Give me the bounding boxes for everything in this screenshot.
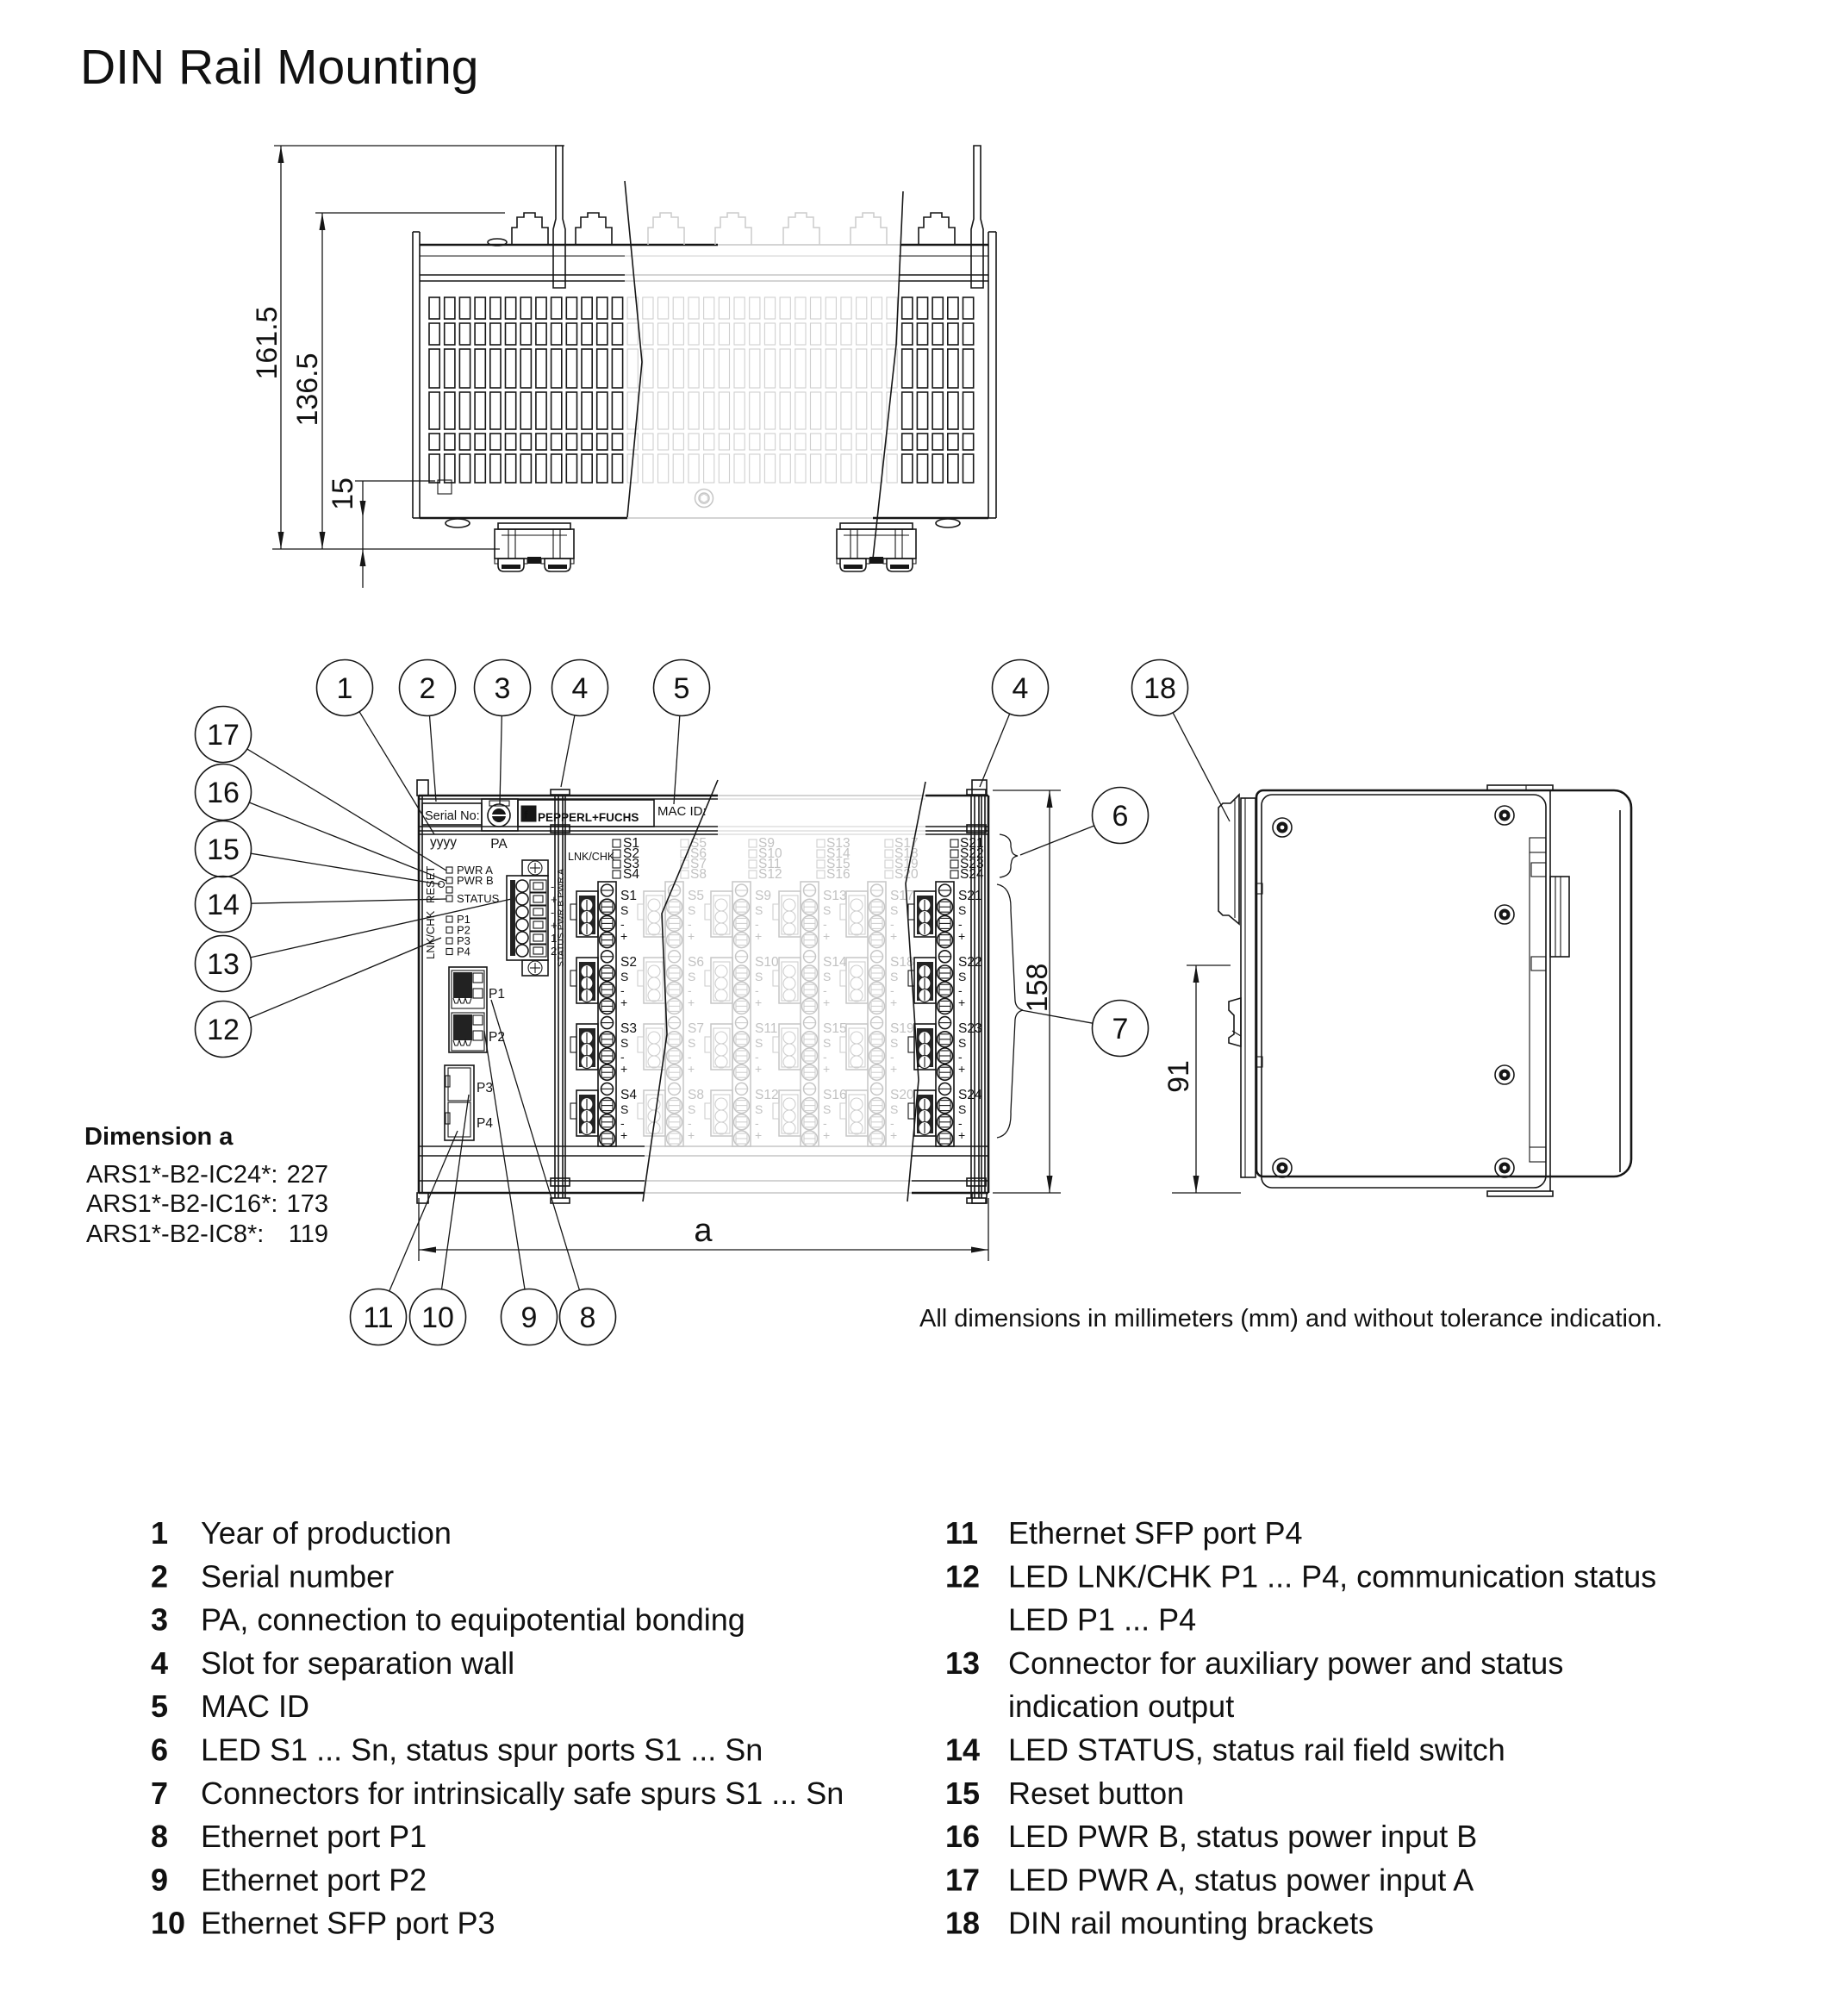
svg-text:S6: S6	[688, 955, 704, 970]
svg-text:+: +	[620, 1062, 627, 1076]
svg-text:Connector for auxiliary power: Connector for auxiliary power and status	[1008, 1645, 1563, 1681]
svg-text:S: S	[688, 1102, 695, 1116]
svg-text:a: a	[694, 1213, 713, 1249]
svg-text:S5: S5	[688, 889, 704, 903]
svg-text:15: 15	[207, 833, 240, 866]
svg-text:S: S	[823, 1036, 831, 1050]
svg-text:RESET: RESET	[424, 866, 437, 903]
svg-text:10: 10	[421, 1301, 454, 1334]
svg-text:S: S	[890, 970, 898, 983]
svg-text:4: 4	[572, 672, 589, 705]
svg-text:All dimensions in millimeters: All dimensions in millimeters (mm) and w…	[919, 1305, 1662, 1333]
svg-text:ARS1*-B2-IC16*:: ARS1*-B2-IC16*:	[86, 1190, 277, 1218]
svg-text:+: +	[958, 1062, 965, 1076]
svg-text:+: +	[890, 1062, 897, 1076]
svg-text:S: S	[620, 1036, 628, 1050]
svg-text:LNK/CHK: LNK/CHK	[424, 910, 437, 959]
svg-text:-: -	[551, 906, 554, 919]
svg-text:S: S	[620, 1102, 628, 1116]
svg-text:S: S	[755, 903, 763, 917]
svg-text:S3: S3	[620, 1021, 637, 1036]
svg-text:+: +	[688, 929, 695, 943]
svg-text:119: 119	[289, 1220, 328, 1248]
svg-text:9: 9	[151, 1862, 168, 1897]
svg-text:S21: S21	[958, 889, 982, 903]
svg-text:Serial No:: Serial No:	[425, 809, 480, 823]
svg-text:P1: P1	[489, 987, 505, 1002]
svg-text:Ethernet SFP port P4: Ethernet SFP port P4	[1008, 1515, 1303, 1551]
svg-text:S: S	[958, 970, 966, 983]
svg-text:S8: S8	[688, 1088, 704, 1102]
svg-text:P3: P3	[477, 1081, 493, 1095]
svg-text:S14: S14	[823, 955, 847, 970]
svg-text:+: +	[688, 1128, 695, 1142]
svg-text:18: 18	[1143, 672, 1176, 705]
svg-text:17: 17	[945, 1862, 980, 1897]
svg-text:S: S	[688, 903, 695, 917]
svg-text:LED S1 ... Sn, status spur por: LED S1 ... Sn, status spur ports S1 ... …	[201, 1732, 763, 1768]
svg-text:+: +	[688, 1062, 695, 1076]
svg-text:1: 1	[337, 672, 353, 705]
svg-text:S: S	[755, 1036, 763, 1050]
svg-text:+: +	[620, 996, 627, 1009]
svg-text:6: 6	[151, 1732, 168, 1768]
svg-text:11: 11	[945, 1515, 978, 1551]
svg-text:STATUS: STATUS	[457, 892, 500, 905]
svg-text:LED PWR B, status power input: LED PWR B, status power input B	[1008, 1819, 1477, 1854]
svg-text:3: 3	[151, 1602, 168, 1638]
svg-text:18: 18	[945, 1906, 980, 1941]
svg-text:+: +	[823, 996, 830, 1009]
svg-text:1: 1	[151, 1515, 168, 1551]
svg-text:S2: S2	[620, 955, 637, 970]
svg-text:S17: S17	[890, 889, 914, 903]
svg-text:S: S	[823, 903, 831, 917]
svg-text:15: 15	[327, 477, 359, 510]
svg-text:S22: S22	[958, 955, 982, 970]
svg-text:+: +	[688, 996, 695, 1009]
svg-text:S: S	[958, 1102, 966, 1116]
svg-text:9: 9	[521, 1301, 538, 1334]
svg-text:S: S	[958, 903, 966, 917]
svg-text:Connectors for intrinsically s: Connectors for intrinsically safe spurs …	[201, 1776, 844, 1811]
svg-text:161.5: 161.5	[251, 306, 284, 379]
svg-text:15: 15	[945, 1776, 980, 1811]
svg-text:S: S	[620, 970, 628, 983]
svg-text:Dimension a: Dimension a	[84, 1123, 234, 1151]
svg-text:S4: S4	[623, 867, 639, 882]
svg-text:Ethernet SFP port P3: Ethernet SFP port P3	[201, 1906, 495, 1941]
svg-text:ARS1*-B2-IC8*:: ARS1*-B2-IC8*:	[86, 1220, 264, 1248]
svg-text:2: 2	[151, 1558, 168, 1594]
svg-text:4: 4	[1013, 672, 1029, 705]
svg-text:16: 16	[207, 777, 240, 809]
svg-text:S12: S12	[758, 867, 782, 882]
svg-text:4: 4	[151, 1645, 168, 1681]
svg-text:S20: S20	[890, 1088, 914, 1102]
svg-text:+: +	[890, 929, 897, 943]
svg-text:S: S	[823, 970, 831, 983]
svg-text:S13: S13	[823, 889, 847, 903]
svg-text:13: 13	[207, 948, 240, 981]
svg-text:ARS1*-B2-IC24*:: ARS1*-B2-IC24*:	[86, 1161, 277, 1189]
svg-text:227: 227	[287, 1161, 328, 1189]
svg-text:S24: S24	[960, 867, 984, 882]
svg-text:12: 12	[945, 1558, 980, 1594]
svg-text:S: S	[958, 1036, 966, 1050]
svg-text:+: +	[755, 996, 762, 1009]
svg-text:14: 14	[945, 1732, 980, 1768]
svg-text:173: 173	[287, 1190, 328, 1218]
svg-text:S: S	[755, 970, 763, 983]
svg-text:MAC ID:: MAC ID:	[657, 804, 707, 819]
svg-text:+: +	[755, 1062, 762, 1076]
svg-text:+: +	[958, 929, 965, 943]
svg-text:PWR B: PWR B	[457, 874, 494, 887]
svg-text:S: S	[688, 970, 695, 983]
svg-text:+: +	[823, 929, 830, 943]
svg-text:S19: S19	[890, 1021, 914, 1036]
svg-text:P4: P4	[477, 1116, 493, 1131]
svg-text:S1: S1	[620, 889, 637, 903]
svg-text:14: 14	[207, 889, 240, 921]
svg-text:S10: S10	[755, 955, 779, 970]
svg-text:S9: S9	[755, 889, 771, 903]
svg-text:S: S	[620, 903, 628, 917]
svg-text:S15: S15	[823, 1021, 847, 1036]
svg-text:16: 16	[945, 1819, 980, 1854]
svg-text:DIN rail mounting brackets: DIN rail mounting brackets	[1008, 1906, 1374, 1941]
svg-text:158: 158	[1021, 964, 1054, 1013]
svg-text:17: 17	[207, 719, 240, 752]
svg-text:+: +	[823, 1128, 830, 1142]
svg-text:S8: S8	[690, 867, 707, 882]
svg-text:yyyy: yyyy	[430, 835, 457, 850]
svg-text:+: +	[823, 1062, 830, 1076]
svg-text:S16: S16	[826, 867, 851, 882]
svg-text:6: 6	[1112, 800, 1129, 833]
svg-text:S7: S7	[688, 1021, 704, 1036]
svg-text:+: +	[958, 1128, 965, 1142]
svg-text:11: 11	[363, 1301, 393, 1334]
svg-text:3: 3	[495, 672, 511, 705]
svg-text:LED PWR A, status power input: LED PWR A, status power input A	[1008, 1862, 1474, 1897]
svg-text:Ethernet port P2: Ethernet port P2	[201, 1862, 427, 1897]
svg-text:LED LNK/CHK P1 ... P4, communi: LED LNK/CHK P1 ... P4, communication sta…	[1008, 1558, 1656, 1594]
svg-text:S: S	[890, 1036, 898, 1050]
svg-text:7: 7	[151, 1776, 168, 1811]
svg-text:5: 5	[674, 672, 690, 705]
svg-text:Year of production: Year of production	[201, 1515, 452, 1551]
svg-text:-: -	[551, 880, 554, 893]
svg-text:+: +	[755, 1128, 762, 1142]
svg-text:S: S	[890, 1102, 898, 1116]
svg-text:PEPPERL+FUCHS: PEPPERL+FUCHS	[538, 811, 639, 824]
svg-text:LED STATUS, status rail field: LED STATUS, status rail field switch	[1008, 1732, 1505, 1768]
svg-text:91: 91	[1162, 1060, 1195, 1093]
svg-text:+: +	[620, 929, 627, 943]
svg-text:MAC ID: MAC ID	[201, 1688, 309, 1724]
svg-text:f: f	[524, 808, 528, 821]
svg-text:P2: P2	[489, 1030, 505, 1045]
svg-text:Ethernet port P1: Ethernet port P1	[201, 1819, 427, 1854]
svg-text:LNK/CHK: LNK/CHK	[568, 851, 615, 863]
svg-text:Serial number: Serial number	[201, 1558, 394, 1594]
svg-text:S24: S24	[958, 1088, 982, 1102]
svg-text:S: S	[755, 1102, 763, 1116]
svg-text:136.5: 136.5	[291, 353, 324, 426]
svg-text:Reset button: Reset button	[1008, 1776, 1184, 1811]
svg-text:8: 8	[151, 1819, 168, 1854]
svg-text:10: 10	[151, 1906, 185, 1941]
svg-text:7: 7	[1112, 1013, 1129, 1045]
svg-text:+: +	[620, 1128, 627, 1142]
svg-text:13: 13	[945, 1645, 980, 1681]
svg-text:5: 5	[151, 1688, 168, 1724]
svg-text:P4: P4	[457, 946, 470, 958]
svg-text:S: S	[688, 1036, 695, 1050]
svg-text:+: +	[755, 929, 762, 943]
svg-text:+: +	[958, 996, 965, 1009]
svg-text:2: 2	[420, 672, 436, 705]
svg-text:Slot for separation wall: Slot for separation wall	[201, 1645, 514, 1681]
svg-text:S23: S23	[958, 1021, 982, 1036]
svg-text:LED P1 ... P4: LED P1 ... P4	[1008, 1602, 1196, 1638]
svg-text:12: 12	[207, 1014, 240, 1046]
svg-text:S16: S16	[823, 1088, 847, 1102]
svg-text:+: +	[890, 996, 897, 1009]
svg-text:+: +	[890, 1128, 897, 1142]
svg-text:8: 8	[580, 1301, 596, 1334]
svg-text:PA: PA	[490, 837, 508, 852]
svg-text:S: S	[823, 1102, 831, 1116]
svg-text:S11: S11	[755, 1021, 777, 1036]
svg-text:S: S	[890, 903, 898, 917]
svg-text:PA, connection to equipotentia: PA, connection to equipotential bonding	[201, 1602, 745, 1638]
svg-text:S12: S12	[755, 1088, 779, 1102]
svg-text:DIN Rail Mounting: DIN Rail Mounting	[80, 40, 479, 95]
svg-text:S4: S4	[620, 1088, 637, 1102]
svg-text:indication output: indication output	[1008, 1688, 1234, 1724]
